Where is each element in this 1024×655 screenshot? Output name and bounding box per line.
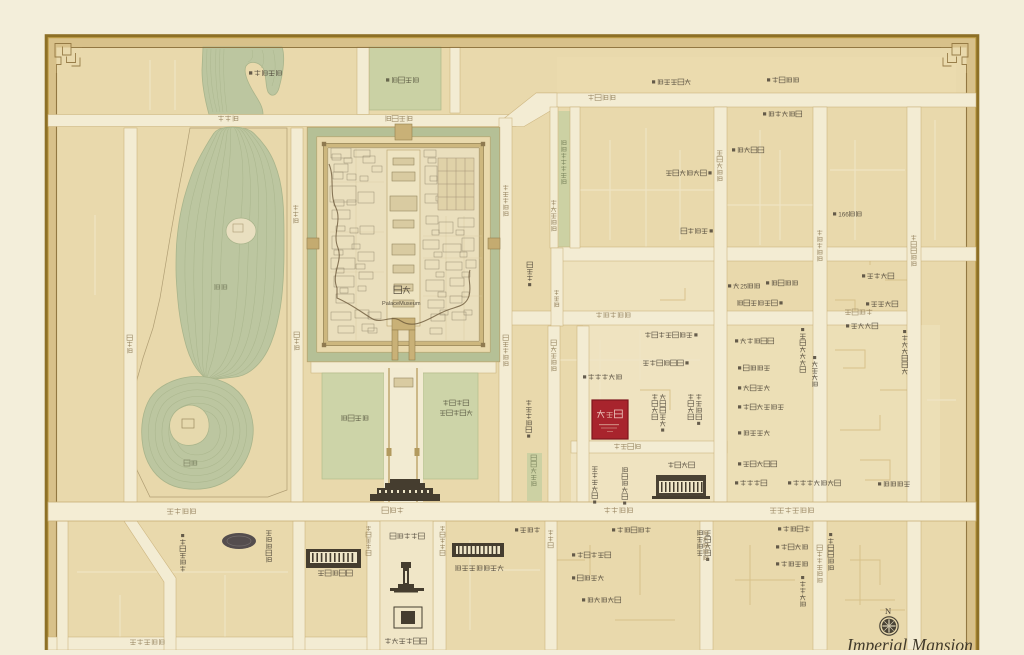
svg-text:PalaceMuseum: PalaceMuseum [382, 301, 421, 307]
svg-text:N: N [885, 606, 891, 616]
svg-text:Imperial Mansion: Imperial Mansion [846, 635, 973, 650]
svg-text:6: 6 [845, 211, 849, 218]
svg-text:5: 5 [744, 283, 748, 290]
